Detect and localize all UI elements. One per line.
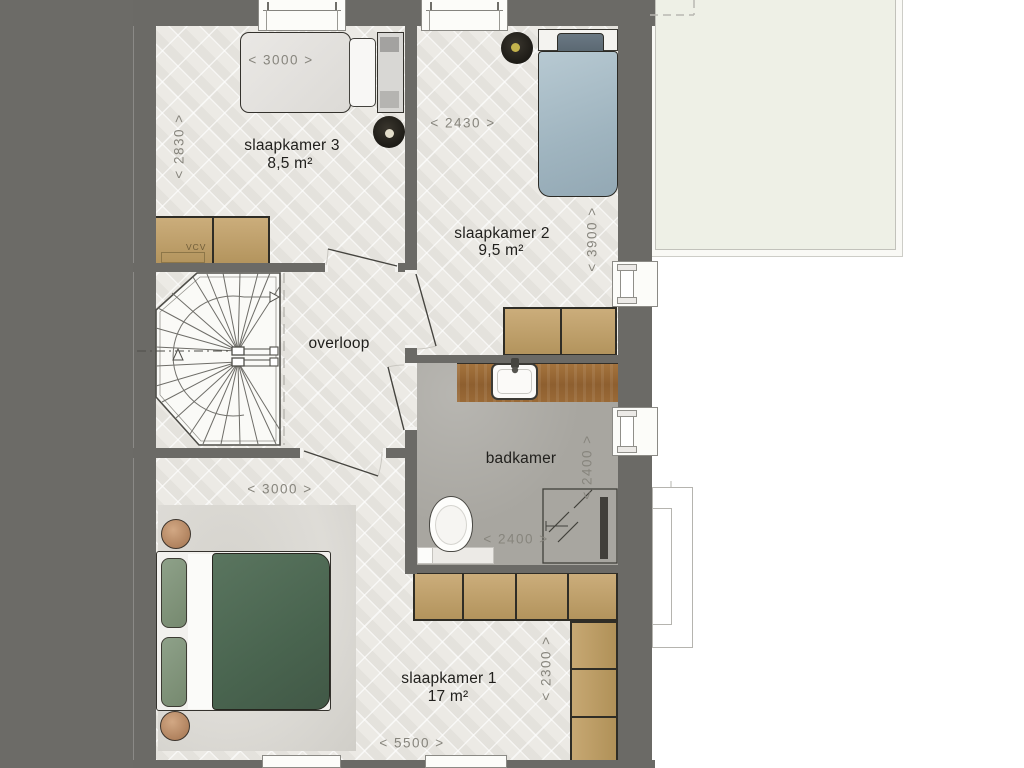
door-jamb	[405, 345, 417, 348]
dimension-sk3-depth: < 2830 >	[172, 113, 187, 178]
window-frame-line	[263, 10, 341, 11]
sink-basin	[497, 369, 532, 394]
window-tick	[430, 2, 432, 10]
dimension-sk1-width-bottom: < 5500 >	[379, 736, 444, 751]
dimension-sk2-depth: < 3900 >	[585, 206, 600, 271]
sink	[491, 363, 538, 400]
cabinet-divider	[572, 668, 616, 670]
bottom-window	[425, 755, 507, 768]
dormer-window	[258, 0, 346, 31]
window-frame-line	[337, 10, 338, 30]
room-label-slaapkamer2: slaapkamer 2	[454, 225, 549, 243]
floorplan-canvas: VCV	[0, 0, 1024, 768]
bed-1-sheet	[188, 554, 215, 709]
toilet	[429, 496, 473, 552]
wall-left	[133, 0, 156, 768]
bed-1-pillow-bottom	[161, 637, 187, 707]
door-jamb	[300, 448, 303, 458]
wardrobe-1-column	[570, 621, 618, 762]
room-label-overloop: overloop	[308, 335, 369, 353]
room-label-badkamer: badkamer	[486, 450, 557, 468]
dimension-sk3-width: < 3000 >	[248, 53, 313, 68]
bottom-window	[262, 755, 341, 768]
cabinet-divider	[515, 574, 517, 619]
room-area-slaapkamer1: 17 m²	[428, 688, 469, 706]
window-frame-line	[429, 10, 430, 30]
window-sash	[617, 446, 637, 453]
toilet-shelf-block	[417, 547, 433, 564]
side-window	[612, 261, 658, 307]
roof-terrace	[648, 0, 903, 257]
window-frame-line	[266, 10, 267, 30]
wall-top	[133, 0, 655, 26]
side-window	[612, 407, 658, 456]
bed-3-headboard	[377, 32, 404, 113]
door-jamb	[405, 427, 417, 430]
dimension-sk1-depth: < 2300 >	[539, 635, 554, 700]
bed-3-pillow	[349, 38, 376, 107]
pouf-top	[161, 519, 191, 549]
toilet-seat	[435, 505, 467, 545]
bed-3-shelf-top	[380, 37, 399, 52]
vcv-unit-outline	[161, 252, 205, 263]
cabinet-divider	[560, 309, 562, 354]
window-tick	[497, 2, 499, 10]
window-sash	[617, 264, 637, 271]
wall-sk3-overloop	[133, 263, 327, 272]
bed-1-duvet	[212, 553, 330, 710]
door-jamb	[395, 263, 398, 272]
cabinet-divider	[462, 574, 464, 619]
wardrobe-1-row	[413, 572, 618, 621]
wall-right	[618, 0, 652, 768]
dimension-bad-depth: < 2400 >	[580, 434, 595, 499]
window-sash	[617, 297, 637, 304]
pouf-bottom	[160, 711, 190, 741]
wardrobe-2	[503, 307, 617, 356]
dimension-bad-width: < 2400 >	[483, 532, 548, 547]
roof-terrace-surface	[655, 0, 896, 250]
vcv-label: VCV	[186, 242, 206, 252]
window-sash	[617, 410, 637, 417]
door-jamb	[405, 363, 417, 366]
door-jamb	[405, 270, 417, 273]
wall-bottom	[133, 760, 655, 768]
vcv-cabinet: VCV	[154, 216, 270, 266]
wall-divider-vertical	[405, 458, 417, 574]
wall-overloop-sk1	[133, 448, 303, 458]
door-jamb	[325, 263, 328, 272]
dimension-sk1-width-top: < 3000 >	[247, 482, 312, 497]
bed-2-duvet	[538, 51, 618, 197]
cabinet-divider	[212, 218, 214, 264]
wall-divider-vertical	[405, 0, 417, 264]
dormer-window	[421, 0, 508, 31]
bed-1-pillow-top	[161, 558, 187, 628]
rug-2-dot	[511, 43, 520, 52]
wall-badkamer-sk1	[405, 565, 618, 573]
window-tick	[335, 2, 337, 10]
bed-3-duvet	[240, 32, 351, 113]
cabinet-divider	[572, 716, 616, 718]
exterior-structure-inner	[652, 508, 672, 625]
bed-3-shelf-bottom	[380, 91, 399, 108]
side-table-3-dot	[385, 129, 394, 138]
dimension-sk2-width: < 2430 >	[430, 116, 495, 131]
room-area-slaapkamer2: 9,5 m²	[478, 242, 523, 260]
window-tick	[267, 2, 269, 10]
cabinet-divider	[567, 574, 569, 619]
wall-overloop-sk1	[383, 448, 417, 458]
room-label-slaapkamer1: slaapkamer 1	[401, 670, 496, 688]
window-frame-line	[426, 10, 503, 11]
window-frame-line	[499, 10, 500, 30]
room-label-slaapkamer3: slaapkamer 3	[244, 137, 339, 155]
wall-sk2-badkamer	[405, 355, 618, 363]
room-area-slaapkamer3: 8,5 m²	[267, 155, 312, 173]
door-jamb	[383, 448, 386, 458]
